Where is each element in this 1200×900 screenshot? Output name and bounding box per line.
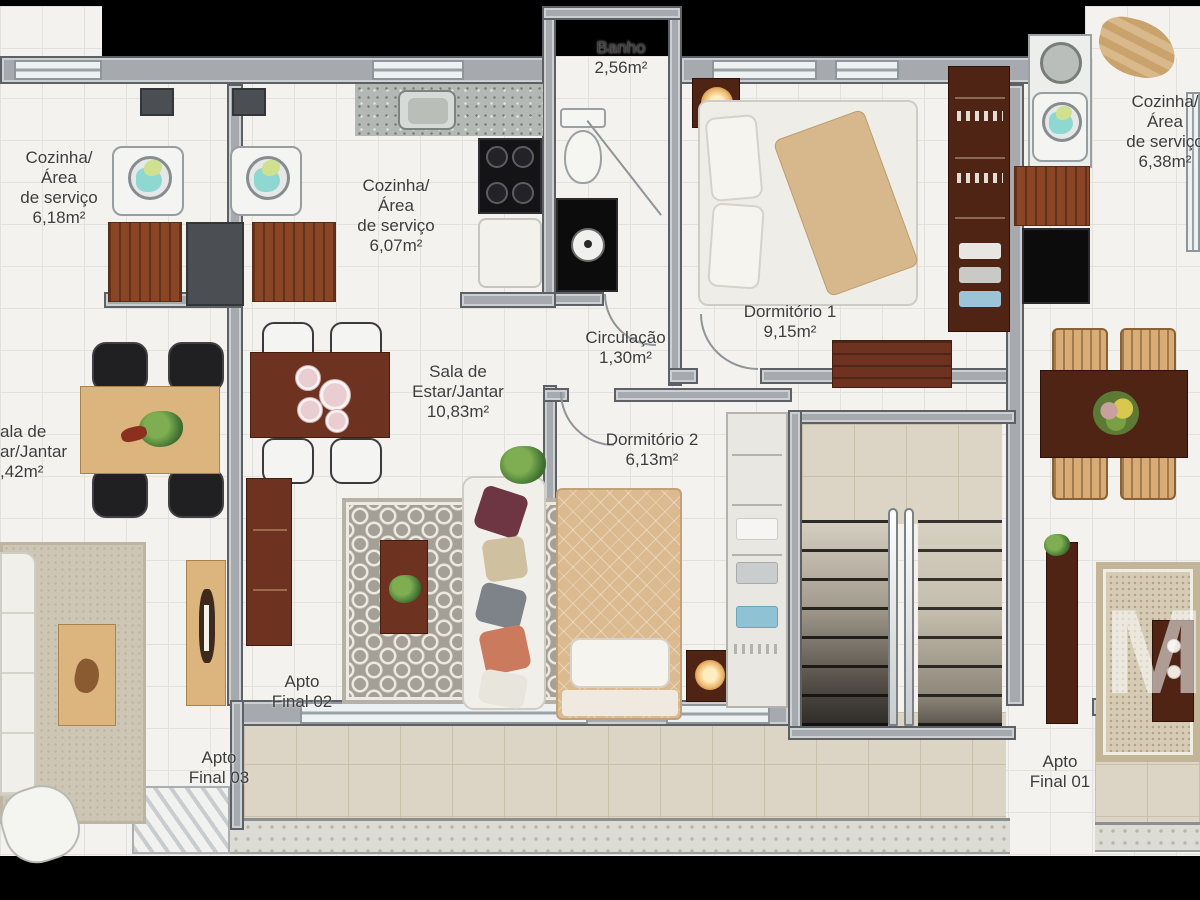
shaft-right (1022, 228, 1090, 304)
wall-dorm1-bottom-a (668, 368, 698, 384)
stair-flight-right (918, 520, 1002, 726)
wall-stair-bottom (788, 726, 1016, 740)
label-apto-final-01: AptoFinal 01 (1000, 752, 1120, 792)
stair-flight-left (802, 520, 888, 726)
room-label-dorm1: Dormitório 19,15m² (700, 302, 880, 342)
room-label-kitchen-left: Cozinha/Área de serviço6,18m² (0, 148, 118, 228)
chair-tan-1 (1052, 328, 1108, 376)
chair-black-2 (168, 342, 224, 392)
chair-tan-2 (1120, 328, 1176, 376)
sideboard-right (1046, 542, 1078, 724)
stair-landing (802, 424, 1002, 524)
wall-tap-2 (232, 88, 266, 116)
wardrobe-dorm1 (948, 66, 1010, 332)
chair-white-4 (330, 438, 382, 484)
single-bed (556, 488, 682, 720)
wall-bath-top (542, 6, 682, 20)
washing-machine-1 (112, 146, 184, 216)
wardrobe-dorm2 (726, 412, 788, 708)
balcony-top-left (0, 6, 102, 58)
dining-table-right (1040, 370, 1188, 458)
toilet-tank (560, 108, 606, 128)
wall-stair-left (788, 410, 802, 740)
room-label-kitchen-right: Cozinha/Área de serviço6,38m² (1120, 92, 1200, 172)
room-label-living-mid: Sala deEstar/Jantar 10,83m² (386, 362, 530, 422)
cabinet-right (1014, 166, 1090, 226)
room-label-circulacao: Circulação1,30m² (548, 328, 703, 368)
room-label-dorm2: Dormitório 26,13m² (586, 430, 718, 470)
stair-rail-1 (888, 508, 898, 726)
room-label-kitchen-mid: Cozinha/Área de serviço6,07m² (328, 176, 464, 256)
cabinet-left-2 (252, 222, 336, 302)
sink-mid (398, 90, 456, 130)
window-dorm1-a (712, 60, 817, 80)
terrace-railing-right (1095, 822, 1200, 852)
tv-cabinet-mid (246, 478, 292, 646)
fridge (478, 218, 542, 288)
sofa-left (0, 552, 36, 796)
toilet-bowl (564, 130, 602, 184)
dining-table-mid (250, 352, 390, 438)
washing-machine-2 (230, 146, 302, 216)
window-dorm1-b (835, 60, 899, 80)
chair-black-4 (168, 468, 224, 518)
room-label-living-left: ala dear/Jantar ,42m² (0, 422, 64, 482)
sideboard-left (186, 560, 226, 706)
dining-table-left (80, 386, 220, 474)
wall-dorm2-top-b (614, 388, 792, 402)
chair-black-1 (92, 342, 148, 392)
bath-vanity (556, 198, 618, 292)
terrace-railing (230, 818, 1010, 854)
wall-kitchen-mid (460, 292, 556, 308)
coffee-table-mid (380, 540, 428, 634)
washing-machine-right (1032, 92, 1088, 162)
chair-tan-3 (1052, 452, 1108, 500)
window-balcony-left (14, 60, 102, 80)
room-label-bath: Banho2,56m² (566, 38, 676, 78)
window-kitchen-mid (372, 60, 464, 80)
watermark: M (1104, 592, 1200, 712)
label-apto-final-02: AptoFinal 02 (250, 672, 354, 712)
bench-dorm1 (832, 340, 952, 388)
wall-stair-top (788, 410, 1016, 424)
shaft-left (186, 222, 244, 306)
wall-bath-left (542, 6, 556, 306)
double-bed (698, 100, 918, 306)
chair-black-3 (92, 468, 148, 518)
balcony-railing-left (132, 786, 230, 854)
label-apto-final-03: AptoFinal 03 (148, 748, 290, 788)
sofa-mid (462, 476, 546, 710)
stair-rail-2 (904, 508, 914, 726)
stove (478, 138, 542, 214)
wall-tap-1 (140, 88, 174, 116)
coffee-table-left (58, 624, 116, 726)
floor-plan: M Cozinha/Área de serviço6,18m² Cozinha/… (0, 0, 1200, 900)
cabinet-left-1 (108, 222, 182, 302)
chair-tan-4 (1120, 452, 1176, 500)
